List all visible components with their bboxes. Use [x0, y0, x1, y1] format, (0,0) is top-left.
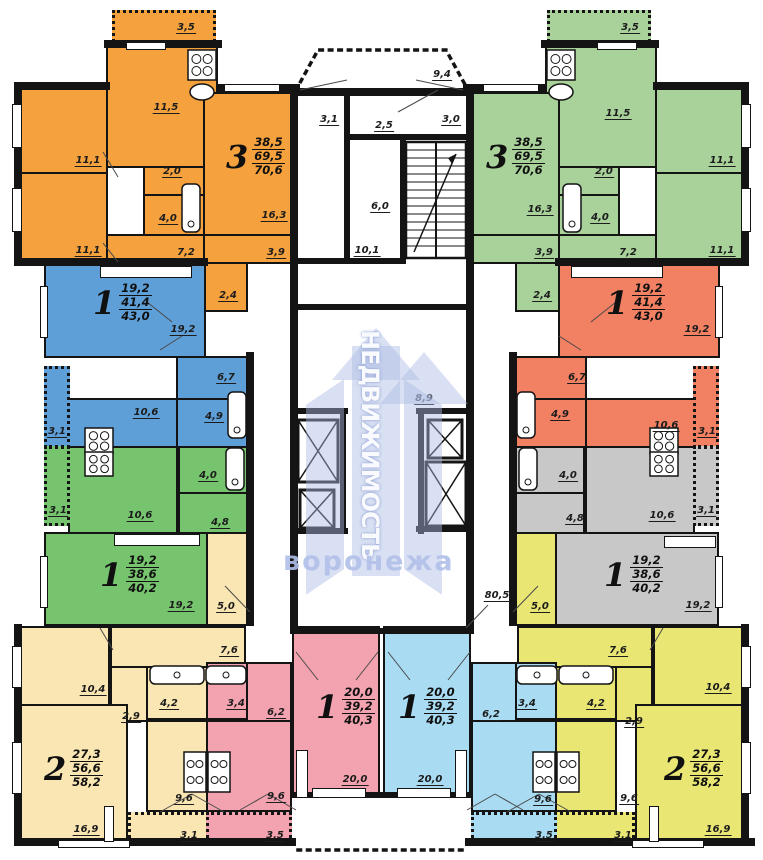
apt-3room-left-area-label: 2,0: [162, 166, 182, 178]
apt-2room-right-area-label: 9,6: [619, 793, 639, 805]
apt-2room-left-area-label: 3,1: [179, 830, 199, 842]
apt-1room-mid-left-rooms-count: 1: [100, 559, 122, 591]
common-area-label: 3,0: [441, 114, 461, 126]
apt-2room-right-room-4_2: [555, 666, 617, 720]
wall-segment: [344, 92, 350, 262]
wall-segment: [466, 92, 474, 632]
apt-1room-mid-left-area-label: 3,1: [48, 505, 68, 517]
apt-2room-left-total-area: 58,2: [70, 776, 102, 789]
apt-3room-right-area-label: 3,5: [620, 22, 640, 34]
apt-1room-mid-left-useful-area: 38,6: [126, 568, 158, 582]
window: [741, 646, 751, 688]
window: [12, 646, 22, 688]
apt-1room-bottom-left-rooms-count: 1: [316, 691, 338, 723]
apt-1room-bottom-left-area-label: 9,6: [266, 791, 286, 803]
apt-1room-bottom-left-area-label: 3,5: [265, 830, 285, 842]
apt-1room-bottom-left-room-3_4: [206, 662, 248, 720]
window: [12, 742, 22, 794]
elevator-icon: [300, 490, 334, 528]
wall-segment: [246, 352, 254, 626]
window: [483, 84, 539, 92]
apt-1room-bottom-left-area-label: 6,2: [266, 707, 286, 719]
apt-1room-mid-right-area-label: 4,8: [565, 513, 585, 525]
apt-3room-left-room-2_4: [203, 262, 248, 312]
wall-segment: [290, 88, 474, 96]
apt-1room-bottom-right-living-area: 20,0: [424, 686, 456, 700]
apt-1room-upper-left-unit-info: 119,241,443,0: [93, 282, 152, 324]
radiator: [571, 266, 663, 278]
apt-1room-upper-right-area-label: 3,1: [697, 426, 717, 438]
apt-1room-mid-left-room-10_6: [68, 446, 178, 534]
apt-3room-right-area-label: 11,5: [605, 108, 632, 120]
apt-1room-upper-right-area-label: 6,7: [567, 372, 587, 384]
apt-1room-mid-left-area-label: 19,2: [168, 600, 195, 612]
watermark-logo-roof: [332, 328, 420, 380]
apt-2room-right-unit-info: 227,356,658,2: [664, 748, 723, 790]
watermark-city-text: воронежа: [283, 546, 455, 577]
apt-1room-mid-left-living-area: 19,2: [126, 554, 158, 568]
wall-segment: [653, 82, 749, 90]
apt-3room-right-living-area: 38,5: [512, 136, 544, 150]
apt-1room-mid-right-total-area: 40,2: [630, 582, 662, 595]
apt-3room-left-area-label: 16,3: [261, 210, 288, 222]
apt-2room-right-useful-area: 56,6: [690, 762, 722, 776]
apt-2room-left-area-label: 5,0: [216, 601, 236, 613]
wall-segment: [290, 92, 298, 632]
common-area-label: 8,9: [414, 393, 434, 405]
apt-1room-mid-right-rooms-count: 1: [604, 559, 626, 591]
window: [126, 42, 166, 50]
apt-1room-bottom-right-area-label: 6,2: [481, 709, 501, 721]
apt-1room-mid-left-area-label: 4,0: [198, 470, 218, 482]
apt-1room-upper-left-room-6_7: [176, 356, 248, 400]
window: [715, 286, 723, 338]
apt-1room-mid-right-living-area: 19,2: [630, 554, 662, 568]
apt-3room-left-area-label: 11,1: [75, 245, 102, 257]
radiator: [114, 534, 200, 546]
apt-1room-bottom-right-area-label: 20,0: [417, 774, 444, 786]
apt-2room-right-total-area: 58,2: [690, 776, 722, 789]
apt-1room-upper-right-area-label: 10,6: [653, 420, 680, 432]
apt-3room-left-rooms-count: 3: [226, 141, 248, 173]
apt-1room-upper-left-area-label: 3,1: [47, 426, 67, 438]
wall-segment: [418, 408, 424, 534]
apt-3room-right-area-label: 11,1: [709, 245, 736, 257]
apt-2room-right-room-10_4: [653, 626, 745, 706]
wall-segment: [290, 628, 474, 634]
apt-1room-mid-left-total-area: 40,2: [126, 582, 158, 595]
apt-2room-left-area-label: 10,4: [80, 684, 107, 696]
apt-1room-mid-right-area-label: 10,6: [649, 510, 676, 522]
apt-3room-right-room-11_5: [545, 46, 657, 168]
apt-1room-bottom-left-area-label: 3,4: [226, 698, 246, 710]
apt-1room-mid-right-area-label: 4,0: [558, 470, 578, 482]
apt-3room-right-area-label: 4,0: [590, 212, 610, 224]
apt-1room-bottom-left-total-area: 40,3: [342, 714, 374, 727]
apt-2room-left-area-label: 4,2: [159, 698, 179, 710]
apt-1room-upper-right-living-area: 19,2: [632, 282, 664, 296]
apt-1room-bottom-right-unit-info: 120,039,240,3: [398, 686, 457, 728]
window: [312, 788, 366, 798]
wall-segment: [290, 304, 474, 310]
window: [40, 556, 48, 608]
apt-1room-mid-right-room-10_6: [585, 446, 695, 534]
apt-1room-upper-left-living-area: 19,2: [119, 282, 151, 296]
apt-3room-right-area-label: 2,4: [532, 290, 552, 302]
apt-1room-upper-left-rooms-count: 1: [93, 287, 115, 319]
apt-1room-bottom-left-living-area: 20,0: [342, 686, 374, 700]
apt-2room-left-useful-area: 56,6: [70, 762, 102, 776]
apt-1room-mid-right-unit-info: 119,238,640,2: [604, 554, 663, 596]
apt-3room-right-area-label: 11,1: [709, 155, 736, 167]
apt-1room-bottom-right-useful-area: 39,2: [424, 700, 456, 714]
apt-3room-left-unit-info: 338,569,570,6: [226, 136, 285, 178]
apt-1room-bottom-right-rooms-count: 1: [398, 691, 420, 723]
apt-1room-upper-right-area-label: 4,9: [550, 409, 570, 421]
watermark-logo-shape: [352, 346, 400, 576]
window: [397, 788, 451, 798]
apt-2room-right-living-area: 27,3: [690, 748, 722, 762]
common-area-label: 10,1: [354, 245, 381, 257]
apt-1room-mid-right-area-label: 3,1: [696, 505, 716, 517]
window: [715, 556, 723, 608]
apt-3room-left-area-label: 11,1: [75, 155, 102, 167]
apt-2room-right-area-label: 5,0: [530, 601, 550, 613]
radiator: [649, 806, 659, 842]
apt-3room-left-area-label: 4,0: [158, 213, 178, 225]
apt-3room-left-total-area: 70,6: [252, 164, 284, 177]
apt-3room-right-area-label: 2,0: [594, 166, 614, 178]
elevator-icon: [298, 420, 338, 482]
apt-1room-bottom-left-useful-area: 39,2: [342, 700, 374, 714]
wall-segment: [14, 82, 110, 90]
window: [12, 104, 22, 148]
radiator: [664, 536, 716, 548]
window: [741, 742, 751, 794]
apt-1room-upper-right-rooms-count: 1: [606, 287, 628, 319]
apt-1room-mid-left-area-label: 4,8: [210, 517, 230, 529]
apt-3room-left-area-label: 3,5: [176, 22, 196, 34]
apt-1room-upper-right-total-area: 43,0: [632, 310, 664, 323]
floor-plan: НЕДВИЖИМОСТЬ воронежа 3,511,52,04,011,11…: [0, 0, 763, 860]
apt-3room-right-rooms-count: 3: [486, 141, 508, 173]
apt-1room-bottom-right-area-label: 9,6: [533, 794, 553, 806]
wall-segment: [348, 134, 468, 140]
apt-1room-upper-right-useful-area: 41,4: [632, 296, 664, 310]
wall-segment: [555, 258, 749, 266]
apt-3room-right-room-4_0: [558, 194, 620, 236]
apt-2room-right-area-label: 4,2: [586, 698, 606, 710]
apt-1room-upper-left-useful-area: 41,4: [119, 296, 151, 310]
apt-2room-right-area-label: 2,9: [624, 716, 644, 728]
apt-3room-right-area-label: 3,9: [534, 247, 554, 259]
window: [632, 840, 704, 848]
window: [741, 104, 751, 148]
staircase-icon: [406, 142, 466, 258]
window: [58, 840, 130, 848]
apt-2room-left-area-label: 7,6: [219, 645, 239, 657]
apt-1room-bottom-right-area-label: 3,4: [517, 698, 537, 710]
common-area-label: 3,1: [319, 114, 339, 126]
apt-2room-left-living-area: 27,3: [70, 748, 102, 762]
apt-1room-upper-left-total-area: 43,0: [119, 310, 151, 323]
apt-2room-left-unit-info: 227,356,658,2: [44, 748, 103, 790]
apt-1room-bottom-left-area-label: 20,0: [342, 774, 369, 786]
wall-segment: [509, 352, 517, 626]
apt-2room-right-area-label: 16,9: [705, 824, 732, 836]
apt-1room-mid-left-unit-info: 119,238,640,2: [100, 554, 159, 596]
apt-1room-mid-left-area-label: 10,6: [127, 510, 154, 522]
apt-3room-right-unit-info: 338,569,570,6: [486, 136, 545, 178]
wall-segment: [14, 838, 296, 846]
apt-1room-bottom-right-total-area: 40,3: [424, 714, 456, 727]
apt-3room-right-area-label: 7,2: [618, 247, 638, 259]
common-area-label: 80,5: [484, 590, 511, 602]
apt-1room-upper-left-area-label: 6,7: [216, 372, 236, 384]
apt-2room-left-area-label: 16,9: [73, 824, 100, 836]
apt-3room-right-useful-area: 69,5: [512, 150, 544, 164]
apt-3room-left-area-label: 2,4: [218, 290, 238, 302]
wall-segment: [340, 408, 346, 534]
apt-2room-right-area-label: 7,6: [608, 645, 628, 657]
apt-3room-left-area-label: 3,9: [266, 247, 286, 259]
apt-2room-left-rooms-count: 2: [44, 753, 66, 785]
apt-1room-upper-left-area-label: 19,2: [170, 324, 197, 336]
radiator: [296, 750, 308, 798]
apt-1room-upper-right-area-label: 19,2: [684, 324, 711, 336]
apt-2room-left-area-label: 2,9: [121, 711, 141, 723]
apt-2room-left-room-4_2: [146, 666, 208, 720]
apt-3room-left-living-area: 38,5: [252, 136, 284, 150]
apt-3room-right-area-label: 16,3: [527, 204, 554, 216]
elevator-icon: [426, 462, 466, 526]
window: [597, 42, 637, 50]
apt-1room-mid-right-useful-area: 38,6: [630, 568, 662, 582]
apt-3room-left-area-label: 7,2: [176, 247, 196, 259]
common-area-label: 9,4: [432, 69, 452, 81]
wall-segment: [290, 258, 406, 264]
apt-2room-right-area-label: 3,1: [613, 830, 633, 842]
apt-1room-upper-right-unit-info: 119,241,443,0: [606, 282, 665, 324]
window: [224, 84, 280, 92]
apt-2room-right-area-label: 10,4: [705, 682, 732, 694]
apt-1room-upper-left-area-label: 10,6: [133, 407, 160, 419]
wall-segment: [416, 526, 474, 532]
window: [741, 188, 751, 232]
common-area-label: 2,5: [374, 120, 394, 132]
window: [12, 188, 22, 232]
wall-segment: [465, 838, 755, 846]
apt-3room-left-useful-area: 69,5: [252, 150, 284, 164]
wall-segment: [14, 258, 208, 266]
watermark-vertical-text: НЕДВИЖИМОСТЬ: [356, 330, 384, 560]
window: [40, 286, 48, 338]
wall-segment: [416, 408, 474, 414]
apt-1room-bottom-right-area-label: 3,5: [534, 830, 554, 842]
radiator: [455, 750, 467, 798]
radiator: [100, 266, 192, 278]
apt-1room-upper-left-area-label: 4,9: [204, 411, 224, 423]
apt-1room-mid-right-area-label: 19,2: [685, 600, 712, 612]
apt-3room-right-total-area: 70,6: [512, 164, 544, 177]
apt-3room-right-room-2_4: [515, 262, 560, 312]
common-area-label: 6,0: [370, 201, 390, 213]
apt-1room-bottom-right-room-3_4: [515, 662, 557, 720]
apt-3room-left-area-label: 11,5: [153, 102, 180, 114]
wall-segment: [400, 136, 406, 262]
elevator-icon: [428, 420, 462, 458]
apt-1room-bottom-left-unit-info: 120,039,240,3: [316, 686, 375, 728]
apt-2room-right-rooms-count: 2: [664, 753, 686, 785]
apt-2room-left-area-label: 9,6: [174, 793, 194, 805]
radiator: [104, 806, 114, 842]
